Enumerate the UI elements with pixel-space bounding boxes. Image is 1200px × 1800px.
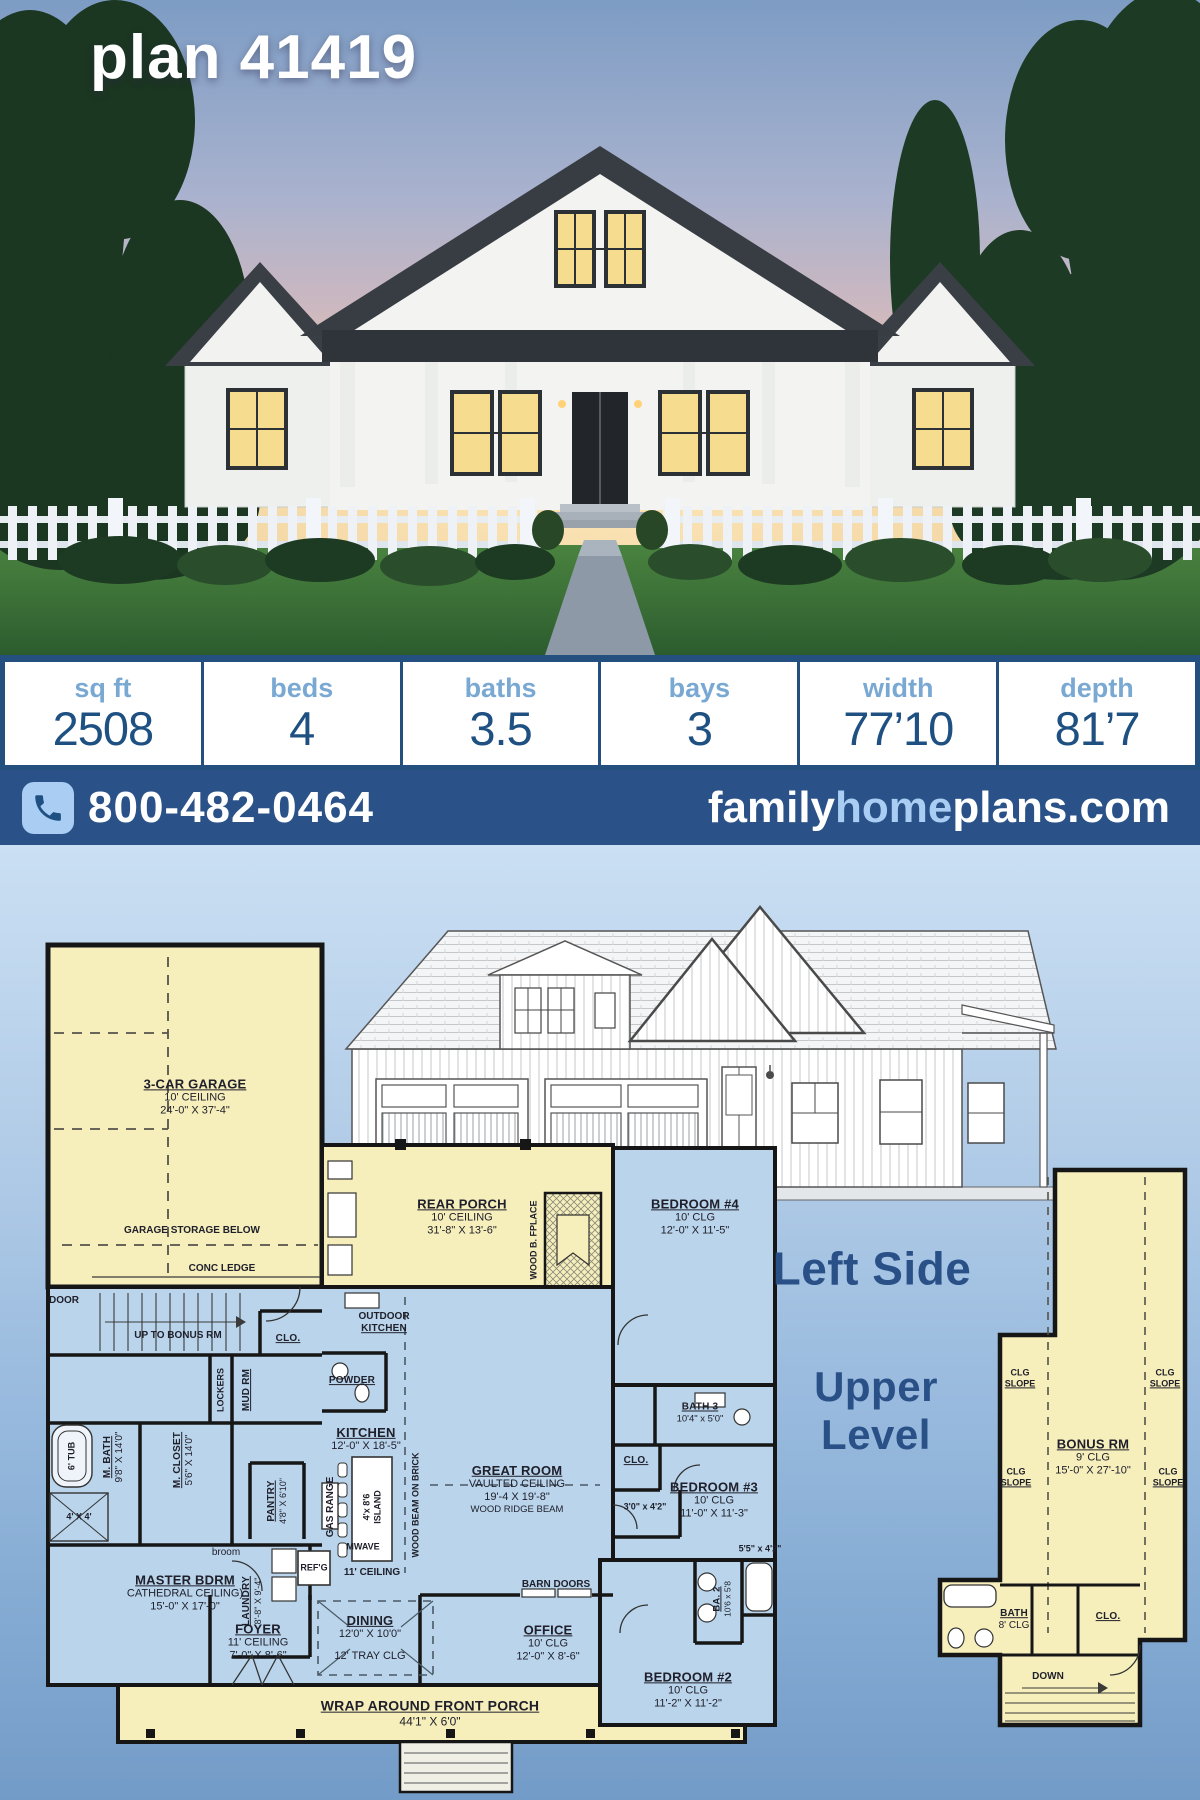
website-family: family (708, 783, 835, 832)
label-closet-hall: CLO. (276, 1333, 301, 1345)
room-label-upper-bath: BATH 8' CLG (999, 1608, 1030, 1632)
label-door: DOOR (49, 1295, 79, 1307)
stat-label: beds (270, 674, 333, 702)
room-label-office: OFFICE 10' CLG 12'-0" X 8'-6" (516, 1622, 579, 1663)
label-tub: 6' TUB (67, 1442, 78, 1470)
room-label-master-bedroom: MASTER BDRM CATHEDRAL CEILING) 15'-0" X … (127, 1572, 243, 1613)
stat-label: width (863, 674, 933, 702)
label-bath2-dim: 5'5" x 4'2" (739, 1544, 782, 1555)
house-photo-art (0, 0, 1200, 655)
label-closet-2: CLO. (624, 1455, 649, 1467)
room-label-outdoor-kitchen: OUTDOOR KITCHEN (358, 1311, 409, 1335)
room-label-front-porch: WRAP AROUND FRONT PORCH 44'1" X 6'0" (321, 1698, 539, 1729)
label-wood-fireplace: WOOD B. FPLACE (529, 1201, 540, 1280)
label-up-to-bonus: UP TO BONUS RM (134, 1330, 221, 1342)
page-title: plan 41419 (90, 22, 417, 93)
stat-label: bays (669, 674, 731, 702)
stat-bays: bays 3 (601, 662, 800, 765)
label-11-ceiling: 11' CEILING (344, 1567, 400, 1579)
label-island: 4'x 8'6 ISLAND (361, 1490, 382, 1524)
stat-value: 2508 (53, 704, 154, 753)
label-microwave: MWAVE (346, 1542, 379, 1553)
label-broom: broom (212, 1547, 240, 1559)
room-label-kitchen: KITCHEN 12'-0" X 18'-5" (331, 1425, 401, 1453)
label-clg-slope-tr: CLG SLOPE (1150, 1367, 1181, 1388)
label-wood-beam: WOOD BEAM ON BRICK (411, 1453, 422, 1558)
label-garage-storage: GARAGE STORAGE BELOW (124, 1225, 260, 1237)
upper-level-label-line2: Level (821, 1411, 931, 1459)
label-clg-slope-bl: CLG SLOPE (1001, 1466, 1032, 1487)
contact-bar: 800-482-0464 familyhomeplans.com (0, 770, 1200, 845)
stat-depth: depth 81’7 (999, 662, 1195, 765)
room-label-bedroom-3: BEDROOM #3 10' CLG 11'-0" X 11'-3" (670, 1479, 758, 1520)
stat-beds: beds 4 (204, 662, 403, 765)
label-conc-ledge: CONC LEDGE (189, 1263, 256, 1275)
website: familyhomeplans.com (708, 783, 1170, 833)
stat-value: 77’10 (843, 704, 953, 753)
room-label-bedroom-2: BEDROOM #2 10' CLG 11'-2" X 11'-2" (644, 1669, 732, 1710)
room-label-bath-3: BATH 3 10'4" x 5'0" (677, 1402, 724, 1425)
label-refrigerator: REF'G (300, 1563, 327, 1574)
phone-icon (22, 782, 74, 834)
label-lockers: LOCKERS (216, 1368, 227, 1412)
floor-plan-art (0, 845, 1200, 1800)
room-label-foyer: FOYER 11' CEILING 7'-0" X 8'-6" (228, 1621, 289, 1662)
room-label-laundry: LAUNDRY 8'-8" X 9'-4" (241, 1576, 263, 1626)
stat-label: sq ft (74, 674, 131, 702)
stat-label: depth (1060, 674, 1134, 702)
room-label-bath-2: BA. 2 10'6 x 5'8 (711, 1581, 732, 1617)
stat-baths: baths 3.5 (403, 662, 602, 765)
stat-width: width 77’10 (800, 662, 999, 765)
phone-block: 800-482-0464 (22, 782, 374, 834)
website-plans: plans.com (952, 783, 1170, 832)
stat-value: 81’7 (1055, 704, 1140, 753)
room-label-garage: 3-CAR GARAGE 10' CEILING 24'-0" X 37'-4" (144, 1076, 247, 1117)
stats-bar: sq ft 2508 beds 4 baths 3.5 bays 3 width… (0, 655, 1200, 770)
stat-value: 4 (289, 704, 314, 753)
room-label-bonus: BONUS RM 9' CLG 15'-0" X 27'-10" (1055, 1436, 1131, 1477)
garage-plan (48, 945, 356, 1315)
website-home: home (835, 783, 952, 832)
left-side-label: Left Side (773, 1243, 972, 1296)
label-closet-dim: 3'0" x 4'2" (624, 1502, 667, 1513)
room-label-rear-porch: REAR PORCH 10' CEILING 31'-8" X 13'-6" (417, 1196, 506, 1237)
label-upper-closet: CLO. (1096, 1611, 1121, 1623)
label-clg-slope-br: CLG SLOPE (1153, 1466, 1184, 1487)
room-label-master-bath: M. BATH 9'8" X 14'0" (102, 1432, 126, 1483)
stat-sqft: sq ft 2508 (5, 662, 204, 765)
room-label-dining: DINING 12'0" X 10'0" 12' TRAY CLG (334, 1613, 405, 1663)
stat-value: 3.5 (469, 704, 531, 753)
room-label-pantry: PANTRY 4'8" X 6'10" (266, 1478, 288, 1524)
room-label-great-room: GREAT ROOM VAULTED CEILING 19'-4 X 19'-8… (469, 1463, 565, 1515)
room-label-bedroom-4: BEDROOM #4 10' CLG 12'-0" X 11'-5" (651, 1196, 739, 1237)
plans-section: Left Side Upper Level 3-CAR GARAGE 10' C… (0, 845, 1200, 1800)
house-photo: plan 41419 (0, 0, 1200, 655)
label-down: DOWN (1032, 1671, 1064, 1683)
label-barn-doors: BARN DOORS (522, 1579, 590, 1591)
label-shower: 4' X 4' (66, 1512, 91, 1523)
stat-label: baths (465, 674, 537, 702)
room-label-powder: POWDER (329, 1375, 375, 1387)
stat-value: 3 (687, 704, 712, 753)
label-clg-slope-tl: CLG SLOPE (1005, 1367, 1036, 1388)
room-label-master-closet: M. CLOSET 5'6" X 14'0" (172, 1432, 196, 1488)
room-label-mud-room: MUD RM (241, 1369, 253, 1411)
poster-root: plan 41419 sq ft 2508 beds 4 baths 3.5 b… (0, 0, 1200, 1800)
phone-number: 800-482-0464 (88, 783, 374, 833)
upper-level-label-line1: Upper (814, 1363, 938, 1411)
label-gas-range: GAS RANGE (325, 1477, 337, 1538)
